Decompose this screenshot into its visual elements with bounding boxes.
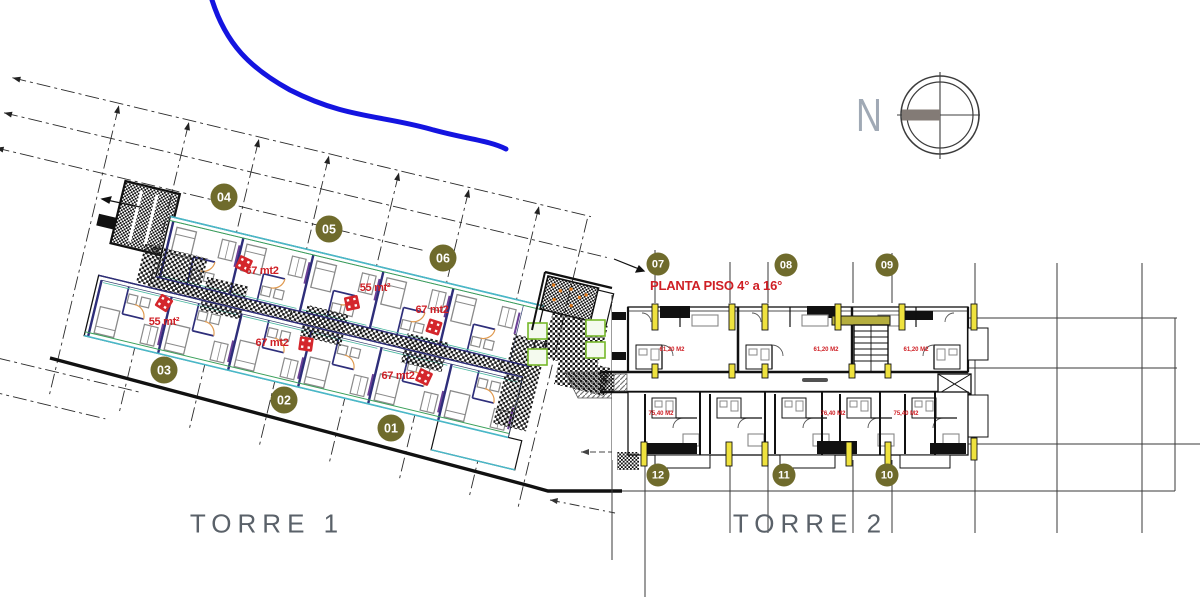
floor-plan-canvas: N PLANTA PISO 4° a 16° TORRE 1 TORRE 2 0… [0,0,1200,597]
torre-2-building [600,303,988,470]
north-compass-icon [897,72,980,159]
road-curve [212,0,506,149]
plan-drawing [0,0,1200,597]
torre-1-plan [0,75,616,524]
